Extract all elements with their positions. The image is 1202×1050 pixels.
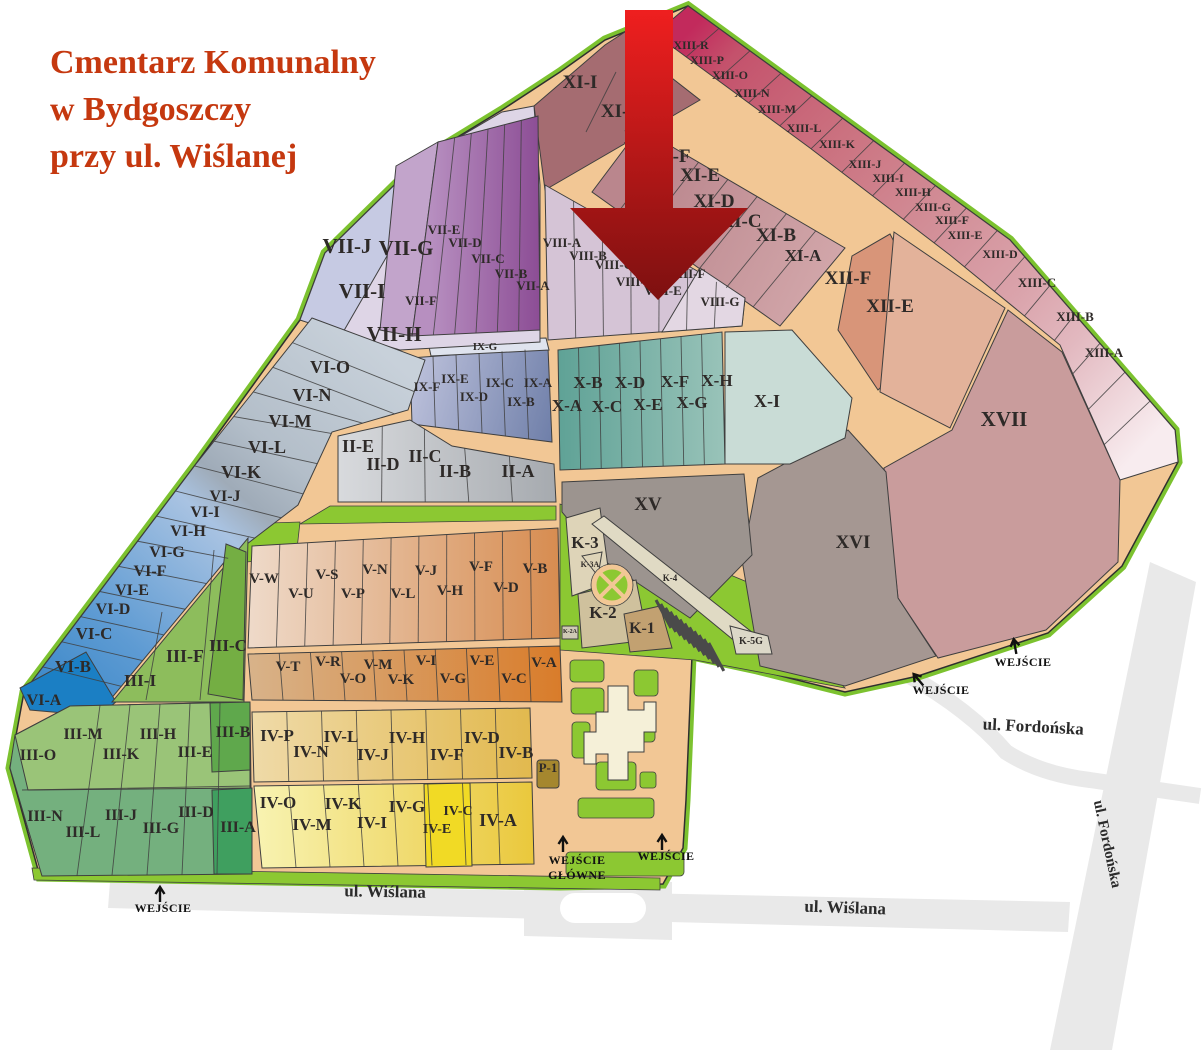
section-label-VI-B: VI-B <box>55 657 91 676</box>
section-label-VII-I: VII-I <box>339 279 386 303</box>
section-label-III-K: III-K <box>103 746 140 763</box>
section-label-XV: XV <box>634 494 662 515</box>
section-label-IX-E: IX-E <box>441 371 468 386</box>
section-label-X-D: X-D <box>615 373 645 392</box>
section-label-K-2: K-2 <box>589 603 616 622</box>
section-label-P-1: P-1 <box>539 760 558 775</box>
section-label-XVI: XVI <box>836 532 871 553</box>
section-label-III-O: III-O <box>20 747 56 764</box>
section-label-V-D: V-D <box>493 580 519 596</box>
section-label-IV-G: IV-G <box>389 797 426 816</box>
section-label-III-M: III-M <box>63 726 102 743</box>
section-label-XIII-K: XIII-K <box>819 137 856 151</box>
section-label-II-B: II-B <box>439 461 471 481</box>
section-label-V-O: V-O <box>340 671 366 687</box>
section-label-XIII-B: XIII-B <box>1056 309 1094 324</box>
section-label-XIII-G: XIII-G <box>915 200 951 214</box>
section-label-VI-M: VI-M <box>269 411 312 431</box>
section-label-XVII: XVII <box>981 407 1028 431</box>
section-label-III-E: III-E <box>178 744 213 761</box>
green-central-1 <box>570 660 604 682</box>
section-label-V-N: V-N <box>362 562 388 578</box>
section-label-XIII-P: XIII-P <box>690 53 724 67</box>
entrance-bus-loop <box>560 893 646 923</box>
section-label-X-B: X-B <box>573 373 602 392</box>
section-label-XIII-L: XIII-L <box>787 121 822 135</box>
roundabout <box>591 564 633 606</box>
entrance-label-2-line0: WEJŚCIE <box>638 849 695 863</box>
section-label-V-P: V-P <box>341 586 365 602</box>
section-label-VI-C: VI-C <box>76 624 113 643</box>
section-label-VI-K: VI-K <box>221 462 261 482</box>
section-label-VI-L: VI-L <box>248 437 286 457</box>
street-label-1: ul. Wiślana <box>804 897 887 919</box>
section-label-IV-E: IV-E <box>423 822 452 837</box>
section-label-XIII-H: XIII-H <box>895 185 932 199</box>
entrance-label-4-line0: WEJŚCIE <box>995 655 1052 669</box>
section-label-XI-E: XI-E <box>680 165 720 186</box>
section-label-V-T: V-T <box>276 659 301 675</box>
section-label-VII-G: VII-G <box>379 236 434 260</box>
section-label-III-F: III-F <box>166 646 204 666</box>
section-label-XIII-E: XIII-E <box>948 228 983 242</box>
section-label-VI-J: VI-J <box>209 488 240 505</box>
section-label-X-F: X-F <box>661 372 689 391</box>
section-label-IV-O: IV-O <box>260 793 297 812</box>
section-label-II-C: II-C <box>408 446 441 466</box>
section-label-VI-I: VI-I <box>190 504 219 521</box>
section-label-IV-A: IV-A <box>479 810 517 830</box>
section-label-XII-F: XII-F <box>825 268 871 289</box>
map-title-line3: przy ul. Wiślanej <box>50 134 376 181</box>
section-label-IV-H: IV-H <box>389 728 426 747</box>
entrance-label-1-line0: WEJŚCIE <box>549 853 606 867</box>
section-label-K-4: K-4 <box>663 573 678 583</box>
map-title-line1: Cmentarz Komunalny <box>50 40 376 87</box>
green-central-7 <box>640 772 656 788</box>
section-label-XIII-O: XIII-O <box>712 68 748 82</box>
section-label-XIII-R: XIII-R <box>673 38 709 52</box>
section-label-VI-F: VI-F <box>134 563 167 580</box>
section-label-IV-J: IV-J <box>357 745 389 764</box>
section-label-IX-A: IX-A <box>524 375 553 390</box>
section-label-II-E: II-E <box>342 436 374 456</box>
section-label-XIII-C: XIII-C <box>1018 275 1056 290</box>
section-label-IX-C: IX-C <box>486 375 514 390</box>
section-label-V-S: V-S <box>315 567 338 583</box>
section-label-XIII-J: XIII-J <box>849 157 882 171</box>
section-label-V-R: V-R <box>315 654 341 670</box>
section-label-III-N: III-N <box>27 808 63 825</box>
section-label-III-J: III-J <box>105 807 137 824</box>
section-label-IV-P: IV-P <box>260 726 294 745</box>
section-label-XII-E: XII-E <box>866 296 914 317</box>
section-label-XI-B: XI-B <box>756 225 796 246</box>
section-label-XIII-I: XIII-I <box>872 171 904 185</box>
section-label-II-A: II-A <box>501 461 534 481</box>
section-label-V-G: V-G <box>440 671 467 687</box>
section-label-III-L: III-L <box>66 824 101 841</box>
entrance-label-3-line0: WEJŚCIE <box>913 683 970 697</box>
section-label-IX-G: IX-G <box>473 341 498 353</box>
section-label-III-B: III-B <box>216 724 251 741</box>
section-label-VI-D: VI-D <box>96 601 131 618</box>
section-label-VI-O: VI-O <box>310 357 350 377</box>
section-label-IX-F: IX-F <box>414 379 441 394</box>
section-label-VII-D: VII-D <box>448 235 481 250</box>
street-fordonska-band <box>1050 562 1196 1050</box>
section-label-VI-H: VI-H <box>170 523 206 540</box>
map-title-line2: w Bydgoszczy <box>50 87 376 134</box>
section-label-XI-A: XI-A <box>785 246 823 265</box>
section-label-XI-I: XI-I <box>563 72 598 93</box>
section-label-V-B: V-B <box>523 561 548 577</box>
section-label-VII-A: VII-A <box>516 278 550 293</box>
section-label-VII-H: VII-H <box>367 322 422 346</box>
section-label-IV-D: IV-D <box>464 728 500 747</box>
section-label-XIII-F: XIII-F <box>935 213 969 227</box>
section-label-XIII-D: XIII-D <box>982 247 1018 261</box>
section-label-V-M: V-M <box>364 657 393 673</box>
section-label-X-E: X-E <box>633 395 662 414</box>
section-label-IV-L: IV-L <box>324 727 359 746</box>
green-central-4 <box>634 670 658 696</box>
section-label-VII-F: VII-F <box>405 293 437 308</box>
section-label-V-F: V-F <box>469 559 493 575</box>
section-label-III-I: III-I <box>124 671 157 690</box>
section-label-V-U: V-U <box>288 586 314 602</box>
section-label-VI-N: VI-N <box>293 385 332 405</box>
section-label-K-5G: K-5G <box>739 636 763 647</box>
map-title: Cmentarz Komunalny w Bydgoszczy przy ul.… <box>50 40 376 181</box>
section-label-III-C: III-C <box>209 636 247 655</box>
section-label-IV-K: IV-K <box>325 794 362 813</box>
section-label-VIII-G: VIII-G <box>700 294 739 309</box>
section-label-III-A: III-A <box>220 819 256 836</box>
entrance-label-0-line0: WEJŚCIE <box>135 901 192 915</box>
section-label-V-W: V-W <box>249 571 279 587</box>
section-label-X-I: X-I <box>754 391 780 411</box>
section-label-IV-F: IV-F <box>430 745 464 764</box>
section-label-VII-C: VII-C <box>471 251 504 266</box>
section-label-IX-B: IX-B <box>507 394 535 409</box>
section-label-V-E: V-E <box>470 653 495 669</box>
section-label-XIII-N: XIII-N <box>734 86 770 100</box>
green-central-2 <box>571 688 604 714</box>
section-label-IX-D: IX-D <box>460 389 488 404</box>
section-label-VI-E: VI-E <box>115 582 149 599</box>
section-label-V-I: V-I <box>416 653 437 669</box>
section-label-III-H: III-H <box>140 726 177 743</box>
section-label-II-D: II-D <box>366 454 399 474</box>
cemetery-map-page: XIII-RXIII-PXIII-OXIII-NXIII-MXIII-LXIII… <box>0 0 1202 1050</box>
section-label-X-C: X-C <box>592 397 622 416</box>
section-label-III-G: III-G <box>143 820 180 837</box>
section-label-IV-B: IV-B <box>499 743 534 762</box>
section-label-V-J: V-J <box>415 563 438 579</box>
section-label-X-G: X-G <box>676 393 707 412</box>
section-label-XIII-M: XIII-M <box>758 102 796 116</box>
section-label-K-3: K-3 <box>571 533 598 552</box>
section-label-VI-G: VI-G <box>149 544 185 561</box>
section-label-V-C: V-C <box>501 671 527 687</box>
section-label-XIII-A: XIII-A <box>1085 345 1124 360</box>
section-label-V-A: V-A <box>531 655 557 671</box>
section-label-VI-A: VI-A <box>27 692 62 709</box>
section-label-K-2A: K-2A <box>563 629 578 635</box>
section-label-V-K: V-K <box>388 672 415 688</box>
section-label-V-H: V-H <box>437 583 464 599</box>
section-label-IV-C: IV-C <box>443 804 472 819</box>
section-label-K-3A: K-3A <box>581 560 600 569</box>
green-central-8 <box>578 798 654 818</box>
section-label-K-1: K-1 <box>629 620 655 637</box>
section-label-VII-J: VII-J <box>322 234 371 258</box>
section-label-V-L: V-L <box>391 586 416 602</box>
section-label-III-D: III-D <box>178 804 214 821</box>
section-label-IV-M: IV-M <box>292 815 331 834</box>
section-label-IV-I: IV-I <box>357 813 387 832</box>
section-label-X-A: X-A <box>552 396 583 415</box>
section-label-X-H: X-H <box>701 371 732 390</box>
entrance-label-1-line1: GŁÓWNE <box>548 868 606 882</box>
street-label-0: ul. Wiślana <box>344 881 426 901</box>
